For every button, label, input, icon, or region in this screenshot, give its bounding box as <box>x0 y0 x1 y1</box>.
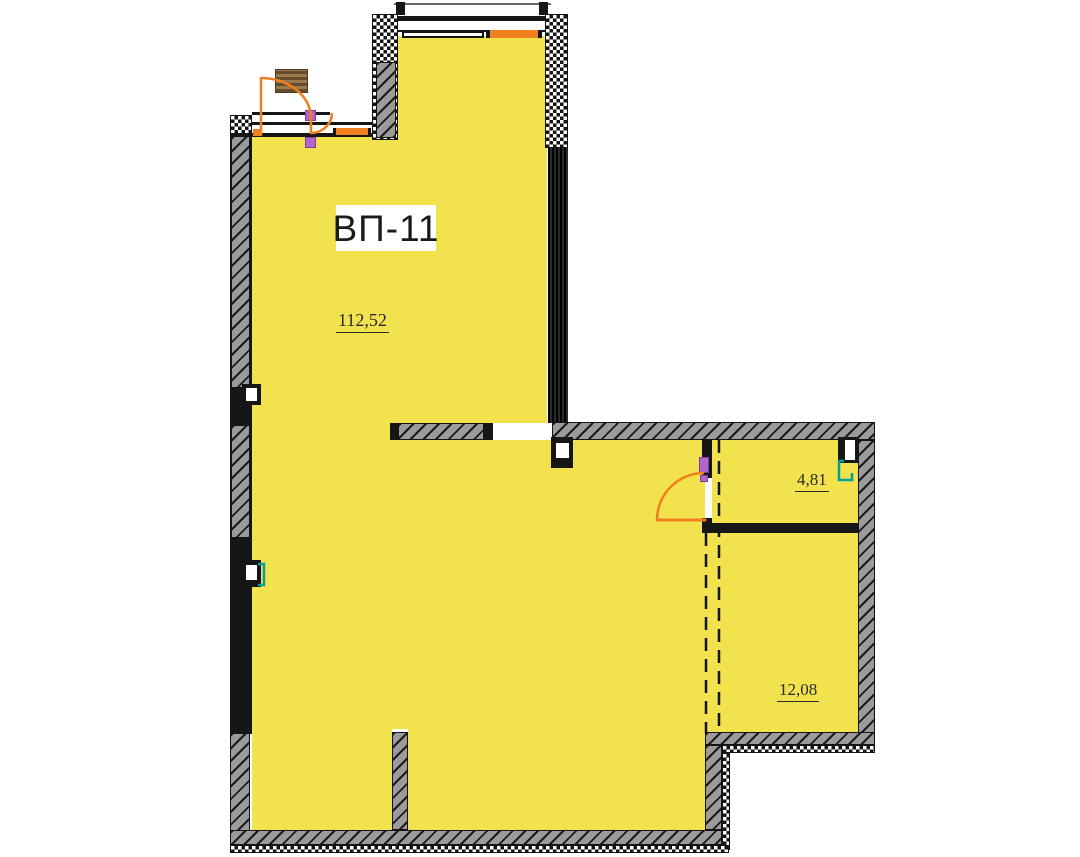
right-section-top-wall <box>552 422 875 440</box>
entry-window-sash <box>333 128 371 135</box>
side-rooms-divider-wall <box>702 523 858 533</box>
upper-right-wall <box>548 148 568 423</box>
left-wall-bottom <box>230 733 250 831</box>
floor-plan: ВП-11 112,52 4,81 12,08 <box>0 0 1080 857</box>
bottom-stub-wall <box>392 732 408 830</box>
bay-column-left <box>376 62 396 138</box>
balcony-edge-line <box>394 3 551 5</box>
bottom-wall <box>230 830 722 845</box>
door-hinge-marker <box>699 457 709 473</box>
entry-cabinet <box>275 69 308 93</box>
side-room-lower-bottom-wall <box>705 732 875 745</box>
entry-wall-line <box>252 112 330 115</box>
entry-sill-line-upper <box>252 122 373 125</box>
side-room-upper-floor <box>712 440 858 524</box>
right-outer-wall <box>858 440 875 745</box>
mid-wall-cap-left <box>390 423 398 440</box>
main-room-area-label: 112,52 <box>336 311 389 329</box>
side-room-lower-floor <box>705 533 858 732</box>
mid-column-void <box>556 443 569 458</box>
window-sash-right <box>486 30 542 38</box>
left-wall-shaft-lower-void <box>246 565 257 580</box>
step-wall <box>705 745 722 830</box>
side-room-lower-area-label: 12,08 <box>777 681 819 698</box>
entry-hinge-marker-lower <box>305 137 316 148</box>
mid-wall <box>398 423 484 440</box>
corner-block-top-left <box>230 115 252 135</box>
duct-niche-void <box>845 440 855 460</box>
left-wall-column-lower <box>231 425 250 538</box>
entry-sill-stub <box>253 129 261 136</box>
unit-label-text: ВП-11 <box>333 210 440 247</box>
left-wall-column-upper <box>231 136 250 388</box>
corridor-floor <box>547 440 705 830</box>
mid-wall-cap-right <box>484 423 493 440</box>
bay-window-floor <box>398 36 547 140</box>
insulation-strip-bottom <box>230 845 729 853</box>
door-hinge-dot <box>700 475 708 482</box>
left-wall-shaft-upper-void <box>246 388 257 401</box>
insulation-strip-side-room <box>722 745 875 753</box>
window-head-line <box>396 16 547 21</box>
entry-hinge-marker-upper <box>305 110 316 121</box>
mid-wall-opening <box>493 423 552 440</box>
bay-wall-right <box>545 14 568 148</box>
unit-label: ВП-11 <box>336 205 436 251</box>
insulation-strip-step <box>722 753 730 850</box>
side-room-upper-area-label: 4,81 <box>795 471 829 488</box>
window-sash-left <box>402 31 484 38</box>
